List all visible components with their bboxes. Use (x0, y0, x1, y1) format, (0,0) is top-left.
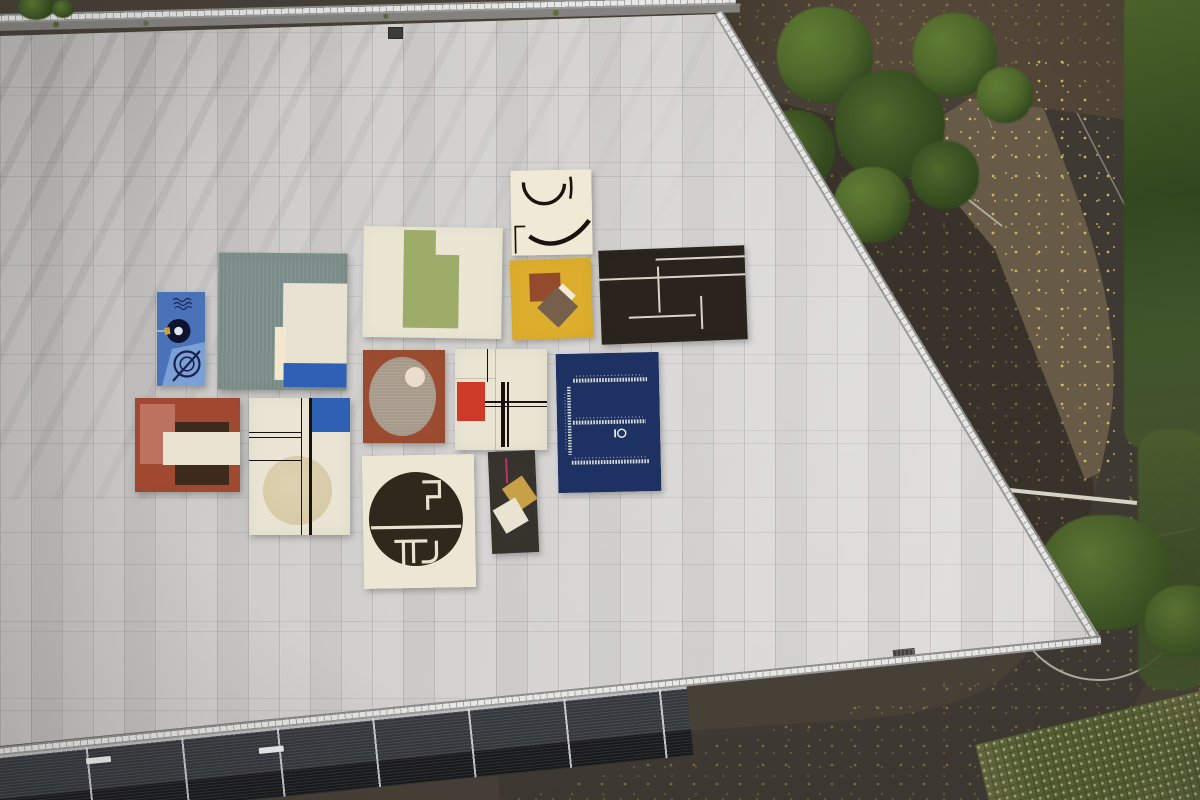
rug-sage-block (362, 226, 503, 339)
tree-canopy (911, 141, 979, 209)
solar-panel-label (259, 745, 284, 753)
red-square (457, 382, 486, 420)
magenta-line (505, 458, 508, 483)
tree-overhang (52, 0, 74, 18)
black-line (301, 398, 302, 535)
rug-wave-ring-blue (157, 292, 205, 386)
cream-band (163, 432, 240, 465)
roof-vent (388, 27, 403, 39)
tree-canopy (977, 67, 1033, 123)
panel-seam (455, 378, 495, 379)
taupe-oval (369, 357, 436, 437)
black-bar (309, 398, 312, 535)
white-line (700, 296, 703, 329)
rug-charcoal-tags (488, 450, 539, 554)
white-line (657, 266, 661, 312)
panel-seam (495, 349, 496, 450)
black-line (249, 460, 301, 461)
rug-ivory-circle-blue (249, 398, 350, 535)
rug-terra-oval (363, 350, 445, 443)
black-line (249, 437, 301, 438)
black-line (507, 382, 509, 447)
white-line (599, 273, 745, 281)
rug-indigo-script (556, 352, 662, 493)
rug-crimson-blocks (135, 398, 240, 492)
rug-charcoal-lines (598, 245, 748, 345)
black-line (487, 349, 489, 382)
white-line (656, 256, 745, 261)
solar-panel-label (86, 756, 111, 764)
rug-ink-arcs (510, 169, 592, 255)
blue-block (283, 363, 346, 388)
blue-corner-block (312, 398, 350, 432)
black-line (485, 401, 547, 403)
rug-slate-panels (217, 252, 347, 390)
black-line (485, 406, 547, 408)
roadside-hedge (1124, 0, 1200, 448)
rug-ochre-overlap (510, 258, 594, 341)
tan-circle (263, 456, 332, 525)
white-line (629, 314, 696, 319)
black-bar (501, 382, 505, 447)
sage-stepped-block (362, 226, 503, 339)
cream-panel (282, 283, 347, 364)
aerial-rooftop-photo (0, 0, 1200, 800)
black-line (249, 432, 301, 433)
rug-ivory-grid-red (455, 349, 547, 450)
rug-ivory-dark-disc (362, 454, 476, 589)
